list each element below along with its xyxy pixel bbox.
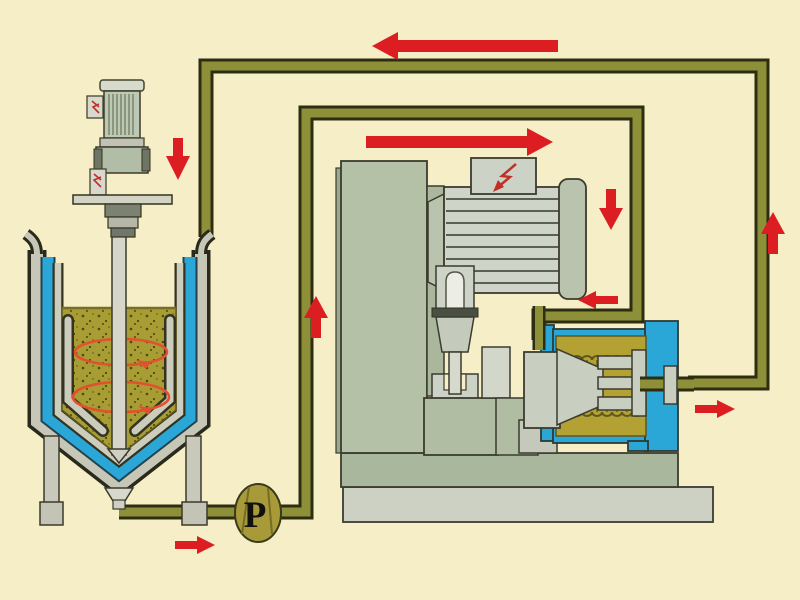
machine-base-lower (343, 487, 713, 522)
tank-leg-right (186, 436, 201, 504)
machine-base-upper (341, 453, 678, 487)
coupling-clamp-band (432, 308, 478, 317)
tank-foot-right (182, 502, 207, 525)
rotor-finger-bottom (598, 397, 636, 410)
tank-leg-left (44, 436, 59, 504)
belt-coupling-window (446, 272, 464, 308)
shaft-gland-upper (105, 204, 141, 217)
motor-end-cap (559, 179, 586, 299)
mill-rotor (598, 350, 646, 416)
agitator-coupling-ring (100, 138, 144, 147)
shaft-gland-lower (111, 228, 135, 237)
outlet-bearing-tab (664, 366, 677, 404)
pump-label: P (244, 495, 267, 536)
agitator-terminal-box-lower (90, 169, 106, 195)
bell-housing (436, 317, 474, 352)
agitator-mounting-plate (73, 195, 172, 204)
bead-mill-circulation-diagram: P (0, 0, 800, 600)
agitator-terminal-box-upper (87, 96, 103, 118)
intermediate-platform (482, 347, 510, 398)
tank-outlet-stem (113, 500, 125, 509)
chamber-foot (628, 441, 648, 451)
rotor-finger-middle (598, 377, 636, 389)
gear-housing-pad-right (142, 149, 150, 171)
process-flow-diagram: P (0, 0, 800, 600)
spindle-shaft (449, 352, 461, 394)
chamber-inlet-cover (524, 352, 560, 428)
circulation-pump: P (235, 484, 281, 542)
machine-column (341, 161, 427, 453)
agitator-motor-fins (109, 94, 133, 135)
gear-housing-pad-left (94, 149, 102, 171)
agitator-motor-cap (100, 80, 144, 91)
machine-pedestal (424, 398, 498, 455)
agitator-shaft (112, 203, 126, 455)
rotor-finger-top (598, 356, 636, 369)
tank-foot-left (40, 502, 63, 525)
shaft-gland-middle (108, 217, 138, 228)
